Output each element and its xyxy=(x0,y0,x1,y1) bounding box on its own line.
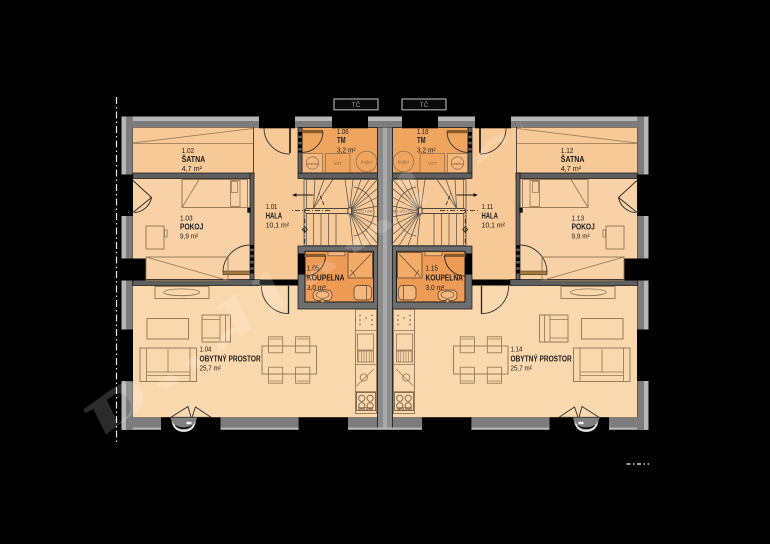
svg-text:1.03: 1.03 xyxy=(180,213,193,222)
svg-text:bojler: bojler xyxy=(361,159,373,164)
svg-text:VZT: VZT xyxy=(333,161,342,166)
svg-text:9,9 m²: 9,9 m² xyxy=(572,232,591,241)
svg-text:9,9 m²: 9,9 m² xyxy=(180,232,199,241)
svg-text:4,7 m²: 4,7 m² xyxy=(561,164,582,173)
svg-text:1.06: 1.06 xyxy=(337,127,349,136)
svg-text:1.01: 1.01 xyxy=(266,202,278,211)
svg-text:3,2 m²: 3,2 m² xyxy=(337,145,356,154)
svg-text:1.14: 1.14 xyxy=(511,345,523,354)
svg-text:25,7 m²: 25,7 m² xyxy=(200,364,222,373)
svg-text:1.02: 1.02 xyxy=(182,146,195,155)
svg-text:10,1 m²: 10,1 m² xyxy=(482,221,506,230)
svg-text:TM: TM xyxy=(337,136,346,145)
svg-text:3,0 m²: 3,0 m² xyxy=(426,283,445,292)
svg-text:1.12: 1.12 xyxy=(561,146,574,155)
svg-text:POKOJ: POKOJ xyxy=(180,222,203,231)
svg-text:25,7 m²: 25,7 m² xyxy=(511,364,533,373)
svg-text:TČ: TČ xyxy=(420,100,429,109)
svg-text:HALA: HALA xyxy=(482,211,499,220)
svg-text:1.13: 1.13 xyxy=(572,213,585,222)
svg-text:ŠATNA: ŠATNA xyxy=(561,155,585,164)
svg-text:KOUPELNA: KOUPELNA xyxy=(426,273,464,282)
svg-text:POKOJ: POKOJ xyxy=(572,222,595,231)
svg-text:1.11: 1.11 xyxy=(482,202,494,211)
svg-text:ŠATNA: ŠATNA xyxy=(182,155,206,164)
svg-text:10,1 m²: 10,1 m² xyxy=(266,221,290,230)
svg-text:OBYTNÝ PROSTOR: OBYTNÝ PROSTOR xyxy=(511,354,572,363)
svg-text:TČ: TČ xyxy=(352,100,361,109)
svg-text:4,7 m²: 4,7 m² xyxy=(182,164,203,173)
svg-text:pračka: pračka xyxy=(306,161,319,166)
svg-text:1.15: 1.15 xyxy=(426,264,439,273)
svg-text:HALA: HALA xyxy=(266,211,283,220)
